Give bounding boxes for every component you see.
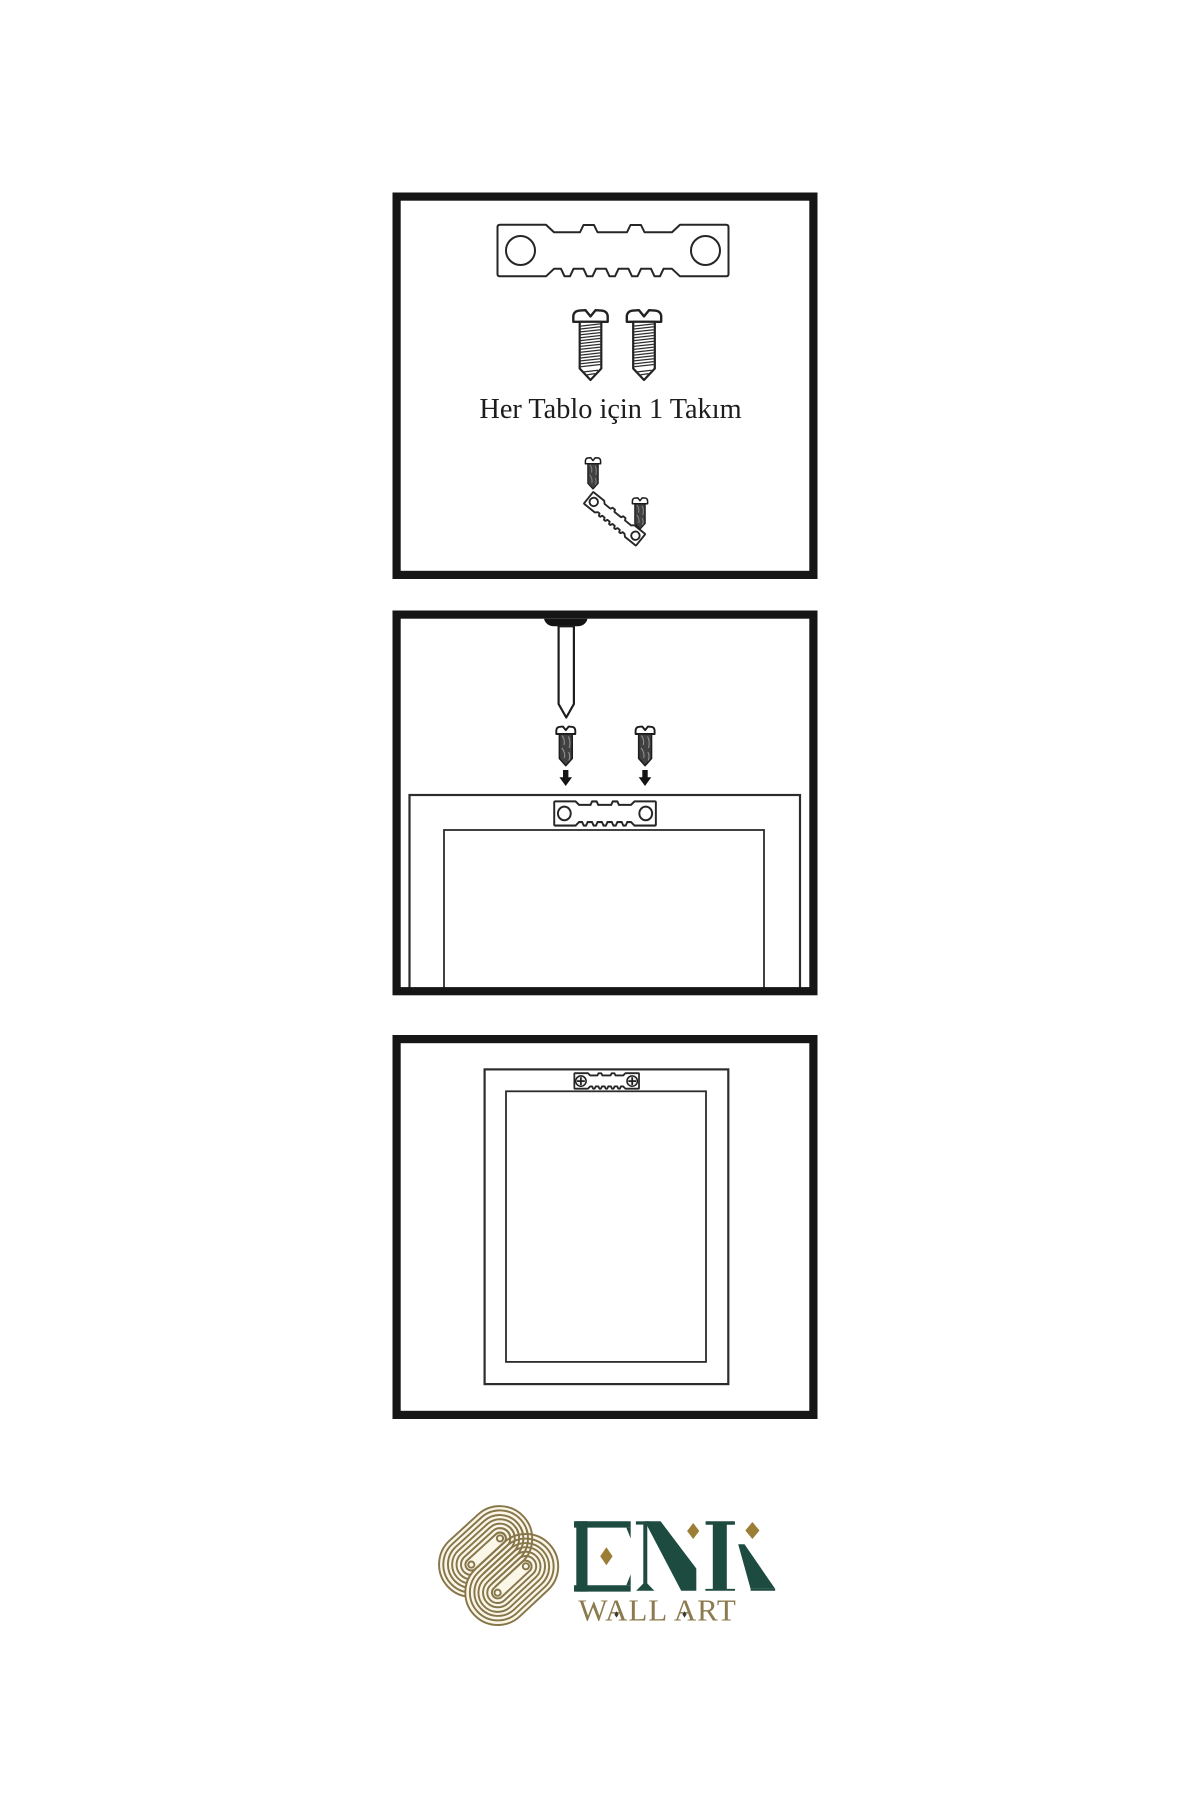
svg-text:WALL ART: WALL ART [578, 1593, 736, 1628]
svg-text:Her Tablo için 1 Takım: Her Tablo için 1 Takım [479, 394, 741, 425]
